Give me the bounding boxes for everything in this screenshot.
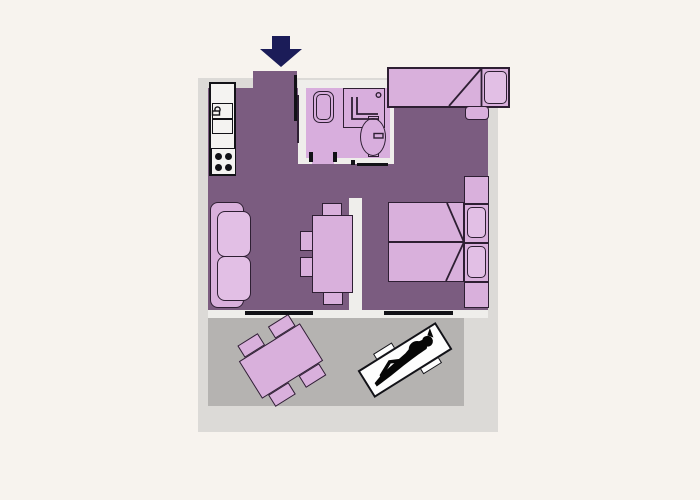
bedroom-door-tick: [351, 160, 355, 165]
toilet: [313, 91, 334, 123]
burner-icon: [215, 153, 222, 160]
burner-icon: [225, 164, 232, 171]
entrance-arrow-icon: [260, 36, 302, 68]
toilet-bowl: [316, 94, 331, 120]
entrance-door-line: [294, 75, 297, 121]
headboard-divider: [465, 203, 488, 205]
burner-icon: [215, 164, 222, 171]
bathroom-door-tick-left: [309, 152, 313, 162]
double-bed-headboard: [464, 176, 489, 308]
floor-plan-canvas: [0, 0, 700, 500]
double-bed-mattresses: [388, 202, 464, 282]
bed-pillow: [467, 207, 486, 238]
sofa-cushion: [217, 256, 251, 301]
bedroom-door-line: [357, 163, 388, 166]
terrace-window-bedroom: [384, 311, 453, 315]
bed-stool: [465, 106, 489, 120]
dining-chair-bottom: [323, 292, 343, 305]
bathroom-door-gap: [312, 156, 334, 164]
entrance-floor: [253, 71, 297, 93]
single-bed-pillow: [484, 71, 507, 104]
bathroom-side-wall-line: [297, 95, 299, 143]
bathroom-door-tick-right: [333, 152, 337, 162]
headboard-divider: [465, 242, 488, 244]
burner-icon: [225, 153, 232, 160]
terrace-window-living: [245, 311, 313, 315]
headboard-divider: [465, 281, 488, 283]
dining-table: [312, 215, 353, 293]
kitchen-sink: [212, 103, 233, 134]
stove: [211, 148, 236, 175]
bed-pillow: [467, 246, 486, 278]
sofa-cushion: [217, 211, 251, 257]
mattress-divider: [389, 241, 463, 243]
kitchen-sink-divider: [213, 118, 232, 120]
washbasin: [360, 118, 386, 156]
